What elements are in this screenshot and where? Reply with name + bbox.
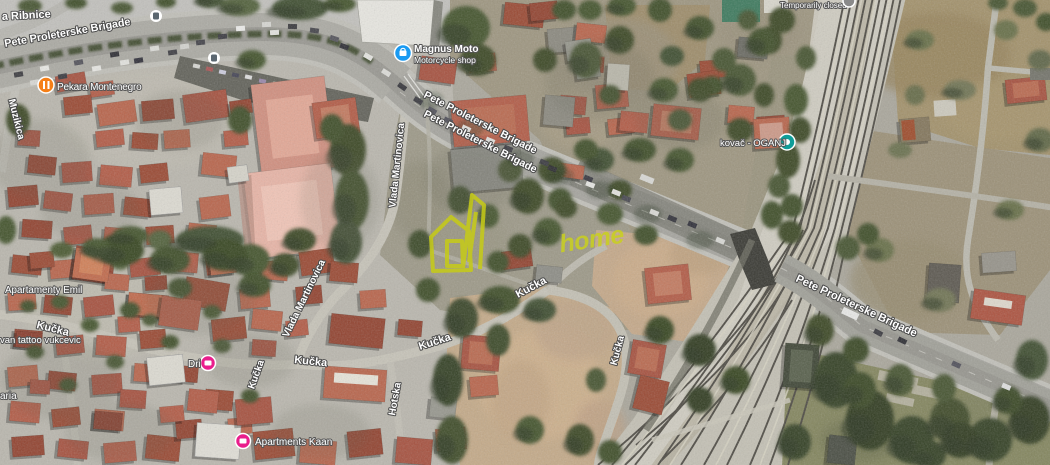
- svg-text:a Ribnice: a Ribnice: [2, 8, 51, 23]
- svg-text:Apartments Kaan: Apartments Kaan: [255, 437, 332, 448]
- svg-text:Dri: Dri: [188, 359, 201, 370]
- svg-text:van tattoo vukcevic: van tattoo vukcevic: [0, 335, 81, 346]
- svg-text:Pekara Montenegro: Pekara Montenegro: [57, 82, 142, 93]
- svg-text:Motorcycle shop: Motorcycle shop: [414, 55, 476, 65]
- svg-text:Apartamenty Emil: Apartamenty Emil: [5, 285, 82, 296]
- svg-text:aria: aria: [0, 391, 17, 402]
- svg-text:kovač - OGANJ: kovač - OGANJ: [720, 138, 786, 149]
- svg-text:Temporarily closed: Temporarily closed: [780, 1, 847, 10]
- svg-text:Magnus Moto: Magnus Moto: [414, 44, 478, 55]
